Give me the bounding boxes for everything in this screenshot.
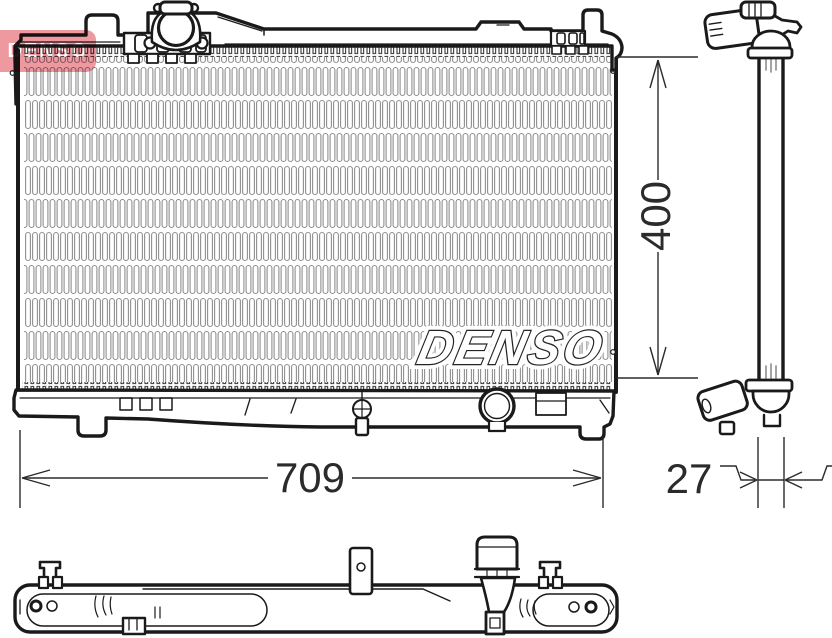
width-value: 709 bbox=[275, 454, 345, 501]
dimension-depth bbox=[720, 437, 832, 508]
top-clamp-right bbox=[551, 31, 588, 54]
height-value: 400 bbox=[632, 181, 679, 251]
drawing-svg: 400 709 27 DENSO DENSO bbox=[0, 0, 832, 638]
core-brand-watermark: DENSO DENSO bbox=[413, 321, 610, 374]
side-view bbox=[696, 2, 801, 434]
leader-right bbox=[786, 466, 832, 480]
leader-left bbox=[720, 466, 756, 480]
rivet-hole bbox=[611, 350, 616, 355]
depth-value: 27 bbox=[666, 455, 713, 502]
radiator-technical-drawing: 400 709 27 DENSO DENSO DENSO bbox=[0, 0, 832, 638]
core-crimp-top bbox=[22, 47, 612, 57]
bottom-tank-outline bbox=[14, 390, 614, 439]
side-column bbox=[759, 56, 783, 380]
side-top-fitting bbox=[704, 2, 801, 58]
core-watermark-text: DENSO bbox=[413, 321, 610, 374]
mounting-tab-middle bbox=[350, 548, 372, 594]
extension-line bbox=[758, 437, 784, 508]
filler-cap bbox=[145, 2, 208, 50]
side-bottom-fitting bbox=[696, 379, 792, 434]
bottom-tank bbox=[14, 389, 614, 439]
bottom-view bbox=[15, 537, 617, 634]
